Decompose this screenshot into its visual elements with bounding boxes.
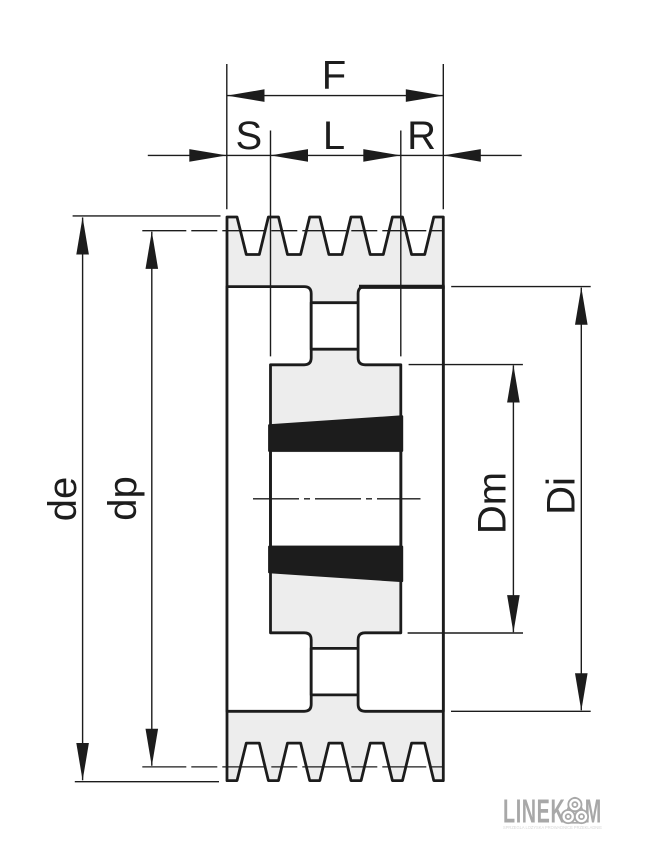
svg-text:M: M xyxy=(585,792,601,830)
svg-text:de: de xyxy=(41,477,85,522)
svg-text:LINEK: LINEK xyxy=(503,792,565,830)
svg-text:Dm: Dm xyxy=(471,472,515,534)
svg-text:dp: dp xyxy=(101,476,145,521)
svg-text:R: R xyxy=(407,114,436,158)
svg-text:Di: Di xyxy=(539,477,583,515)
svg-text:SPRZEGLA LOZYSKA PROWADNICE PR: SPRZEGLA LOZYSKA PROWADNICE PRZEKLADNIE xyxy=(503,825,602,830)
svg-text:F: F xyxy=(322,53,346,97)
svg-text:S: S xyxy=(236,114,263,158)
svg-text:L: L xyxy=(323,114,345,158)
